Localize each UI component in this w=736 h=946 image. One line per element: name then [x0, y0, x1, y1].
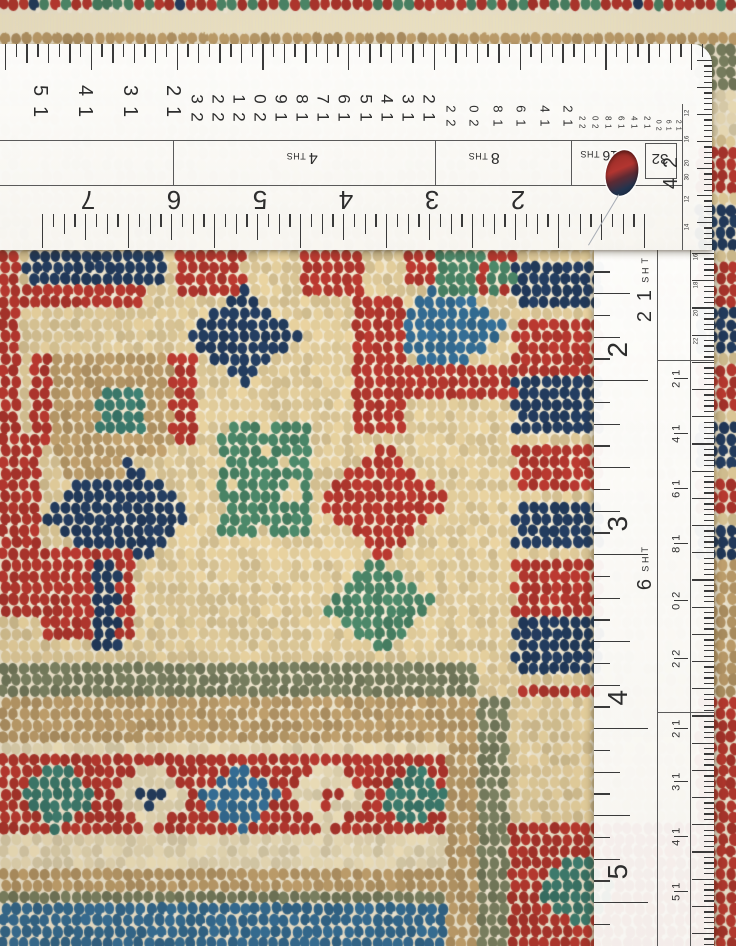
top-edge-tick: [359, 44, 360, 57]
scale-label-letter: H: [641, 556, 651, 563]
scale-label-number: 8: [491, 148, 500, 166]
scale-number: 41: [75, 80, 95, 122]
right-edge-tick: [704, 264, 714, 265]
right-edge-tick: [704, 569, 714, 570]
right-scale-tick: [674, 378, 688, 379]
top-edge-tick: [166, 44, 167, 57]
end-edge-tick: [704, 217, 713, 218]
bottom-edge-tick: [375, 214, 376, 227]
right-edge-tick: [704, 481, 714, 482]
ruler-digit: 1: [561, 119, 575, 126]
scale-label-suffix: THS: [468, 151, 488, 161]
scale-number: 61: [336, 90, 353, 126]
top-edge-tick: [541, 44, 542, 63]
top-edge-tick: [412, 44, 413, 63]
end-edge-tick: [704, 146, 713, 147]
scale-number: 51: [357, 90, 374, 126]
right-edge-tick: [704, 732, 714, 733]
ruler-digit: 0: [654, 120, 661, 124]
bottom-edge-tick: [612, 214, 613, 227]
right-edge-tick: [704, 329, 714, 330]
right-edge-tick: [704, 748, 714, 749]
bottom-edge-tick: [268, 214, 269, 227]
top-edge-tick: [402, 44, 403, 57]
top-edge-tick: [487, 44, 488, 57]
ruler-digit: 2: [209, 94, 227, 103]
right-edge-tick: [704, 802, 714, 803]
ruler-digit: 1: [616, 124, 624, 128]
scale-number: 41: [629, 114, 637, 131]
ruler-digit: 2: [163, 85, 184, 96]
left-edge-tick: [594, 424, 620, 425]
ruler-digit: 1: [672, 370, 684, 376]
right-edge-tick: [692, 362, 714, 363]
top-edge-tick: [37, 44, 38, 57]
right-edge-tick: [704, 400, 714, 401]
inch-number: 6: [164, 184, 184, 215]
bottom-edge-tick: [257, 214, 258, 240]
scale-number: 41: [538, 102, 551, 129]
end-edge-tick: [704, 98, 713, 99]
scale-number: 21: [420, 90, 437, 126]
top-edge-tick: [112, 44, 113, 63]
bottom-edge-tick: [214, 214, 215, 248]
bottom-edge-tick: [85, 214, 86, 240]
ruler-digit: 1: [672, 535, 684, 541]
ruler-digit: 1: [30, 106, 51, 117]
right-edge-tick: [692, 634, 714, 635]
inch-number: 4: [336, 184, 356, 215]
right-edge-tick: [704, 650, 714, 651]
top-edge-tick: [648, 44, 649, 63]
scale-label-letter: S: [641, 566, 651, 572]
end-edge-tick: [704, 119, 713, 120]
ruler-digit: 2: [642, 116, 650, 120]
bottom-edge-tick: [483, 214, 484, 227]
bottom-edge-tick: [150, 214, 151, 234]
top-edge-tick: [134, 44, 135, 63]
right-edge-tick: [692, 743, 714, 744]
right-scale-number: 22: [693, 338, 699, 345]
bottom-edge-tick: [472, 214, 473, 248]
top-edge-tick: [209, 44, 210, 57]
scale-number: 32: [188, 90, 205, 126]
end-scale-number: 12: [684, 196, 690, 203]
top-edge-tick: [59, 44, 60, 57]
right-edge-tick: [704, 465, 714, 466]
right-edge-tick: [704, 378, 714, 379]
top-edge-tick: [252, 44, 253, 57]
right-edge-tick: [704, 286, 714, 287]
scale-label-suffix: THS: [286, 151, 306, 161]
ruler-digit: 4: [662, 178, 683, 189]
ruler-digit: 8: [491, 105, 505, 112]
inch-number: 3: [422, 184, 442, 215]
scale-label-letter: S: [641, 277, 651, 283]
top-edge-tick: [466, 44, 467, 57]
top-edge-tick: [80, 44, 81, 57]
scale-number: 02: [251, 90, 268, 126]
bottom-edge-tick: [203, 214, 204, 227]
ruler-digit: 1: [674, 127, 681, 131]
top-edge-tick: [230, 44, 231, 57]
scale-label-number: 6: [636, 578, 657, 589]
bottom-edge-tick: [311, 214, 312, 227]
right-edge-tick: [704, 781, 714, 782]
inch-number: 4: [604, 683, 632, 712]
top-edge-tick: [26, 44, 27, 63]
right-scale-tick: [674, 600, 688, 601]
scale-label-letter: H: [641, 267, 651, 274]
ruler-digit: 1: [230, 94, 248, 103]
right-edge-tick: [704, 672, 714, 673]
right-edge-tick: [704, 928, 714, 929]
ruler-digit: 2: [672, 592, 684, 598]
ruler-digit: 2: [590, 124, 598, 128]
right-edge-tick: [704, 710, 714, 711]
inch-number: 5: [250, 184, 270, 215]
ruler-digit: 1: [664, 127, 671, 131]
top-edge-tick: [91, 44, 92, 70]
scale-number: 21: [163, 80, 183, 122]
top-edge-tick: [284, 44, 285, 63]
right-edge-tick: [704, 623, 714, 624]
ruler-digit: 1: [672, 828, 684, 834]
right-edge-tick: [704, 835, 714, 836]
top-edge-tick: [423, 44, 424, 57]
ruler-digit: 2: [467, 119, 481, 126]
right-scale-number: 18: [693, 282, 699, 289]
top-edge-tick: [241, 44, 242, 63]
scale-number: 22: [577, 114, 585, 131]
right-edge-tick: [704, 884, 714, 885]
bottom-edge-tick: [236, 214, 237, 234]
right-edge-tick: [704, 830, 714, 831]
section-divider: [682, 104, 683, 250]
right-scale-tick: [674, 658, 688, 659]
ruler-digit: 5: [672, 894, 684, 900]
right-edge-tick: [704, 449, 714, 450]
right-edge-tick: [704, 922, 714, 923]
bottom-edge-tick: [128, 214, 129, 248]
right-edge-tick: [704, 841, 714, 842]
horizontal-ruler: 5141312132221202918171615141312122028161…: [0, 44, 712, 250]
bottom-edge-tick: [117, 214, 118, 227]
ruler-digit: 1: [314, 112, 332, 121]
bottom-edge-tick: [42, 214, 43, 248]
ruler-digit: 6: [664, 120, 671, 124]
right-edge-tick: [704, 705, 714, 706]
left-edge-tick: [594, 576, 610, 577]
right-edge-tick: [704, 427, 714, 428]
end-edge-tick: [697, 195, 712, 196]
right-edge-tick: [704, 889, 714, 890]
scale-label-letter: T: [641, 547, 651, 553]
ruler-digit: 5: [603, 864, 632, 880]
vertical-ruler: 2345THS12THS6161820221214161820221213141…: [594, 250, 714, 946]
ruler-digit: 1: [672, 480, 684, 486]
right-scale-tick: [674, 781, 688, 782]
end-edge-tick: [704, 125, 713, 126]
left-edge-tick: [594, 315, 610, 316]
right-edge-tick: [692, 579, 714, 580]
end-edge-tick: [704, 238, 713, 239]
bottom-edge-tick: [580, 214, 581, 234]
ruler-digit: 1: [335, 112, 353, 121]
left-edge-tick: [594, 815, 630, 816]
end-edge-tick: [704, 173, 713, 174]
top-edge-tick: [530, 44, 531, 57]
ruler-digit: 4: [603, 690, 632, 706]
end-edge-tick: [704, 109, 713, 110]
right-edge-tick: [704, 367, 714, 368]
scale-number: 51: [30, 80, 50, 122]
ruler-line: [0, 140, 682, 141]
right-edge-tick: [704, 917, 714, 918]
scale-label-suffix: THS: [580, 149, 600, 159]
bottom-edge-tick: [160, 214, 161, 227]
left-edge-tick: [594, 271, 610, 272]
right-edge-tick: [692, 471, 714, 472]
inch-number: 3: [604, 509, 632, 538]
scale-number: 61: [664, 118, 671, 133]
right-edge-tick: [692, 552, 714, 553]
end-edge-tick: [704, 163, 713, 164]
right-edge-tick: [704, 666, 714, 667]
ruler-digit: 4: [672, 839, 684, 845]
ruler-digit: 1: [672, 720, 684, 726]
top-edge-tick: [509, 44, 510, 57]
top-edge-tick: [144, 44, 145, 57]
top-edge-tick: [670, 44, 671, 63]
bottom-edge-tick: [182, 214, 183, 227]
inch-digit: 4: [339, 184, 353, 215]
scale-number: 21: [674, 118, 681, 133]
ruler-digit: 2: [577, 116, 585, 120]
right-edge-tick: [704, 373, 714, 374]
top-edge-tick: [455, 44, 456, 63]
top-edge-tick: [595, 44, 596, 57]
top-edge-tick: [616, 44, 617, 57]
top-edge-tick: [327, 44, 328, 63]
right-edge-tick: [704, 454, 714, 455]
top-edge-tick: [605, 44, 606, 70]
right-scale-number: 20: [693, 310, 699, 317]
ruler-digit: 1: [514, 119, 528, 126]
end-edge-tick: [697, 114, 712, 115]
end-edge-tick: [704, 206, 713, 207]
bottom-edge-tick: [139, 214, 140, 227]
right-edge-tick: [704, 476, 714, 477]
ruler-digit: 2: [188, 112, 206, 121]
scale-label-number: 4: [309, 148, 318, 166]
top-edge-tick: [155, 44, 156, 63]
top-edge-tick: [123, 44, 124, 57]
right-edge-tick: [692, 797, 714, 798]
right-edge-tick: [704, 585, 714, 586]
end-scale-number: 16: [684, 136, 690, 143]
ruler-digit: 1: [491, 119, 505, 126]
right-edge-tick: [704, 558, 714, 559]
left-edge-tick: [594, 924, 610, 925]
ruler-digit: 3: [603, 516, 632, 532]
right-edge-tick: [704, 541, 714, 542]
end-edge-tick: [704, 82, 713, 83]
right-edge-tick: [692, 715, 714, 716]
right-edge-tick: [704, 438, 714, 439]
inch-number: 7: [78, 184, 98, 215]
scale-number: 02: [590, 114, 598, 131]
bottom-edge-tick: [53, 214, 54, 227]
top-edge-tick: [584, 44, 585, 63]
bottom-edge-tick: [64, 214, 65, 234]
right-edge-tick: [704, 601, 714, 602]
right-edge-tick: [704, 628, 714, 629]
end-scale-number: 30: [684, 174, 690, 181]
bottom-edge-tick: [300, 214, 301, 248]
inch-digit: 5: [253, 184, 267, 215]
ruler-digit: 2: [251, 112, 269, 121]
ruler-digit: 2: [230, 112, 248, 121]
right-edge-tick: [704, 503, 714, 504]
left-edge-tick: [594, 402, 610, 403]
right-edge-tick: [704, 422, 714, 423]
bottom-edge-tick: [343, 214, 344, 240]
bottom-edge-tick: [633, 214, 634, 227]
ruler-digit: 2: [603, 342, 632, 358]
ruler-digit: 1: [420, 112, 438, 121]
right-edge-tick: [704, 297, 714, 298]
right-edge-tick: [704, 868, 714, 869]
top-edge-tick: [198, 44, 199, 63]
bottom-edge-tick: [225, 214, 226, 227]
top-edge-tick: [48, 44, 49, 63]
ruler-digit: 6: [672, 491, 684, 497]
bottom-edge-tick: [440, 214, 441, 227]
inch-number: 2: [508, 184, 528, 215]
end-edge-tick: [704, 103, 713, 104]
left-edge-tick: [594, 902, 648, 903]
right-edge-tick: [704, 460, 714, 461]
right-edge-tick: [704, 944, 714, 945]
scale-number: 31: [399, 90, 416, 126]
scale-number: 21: [561, 102, 574, 129]
scale-label-number: 1: [636, 289, 657, 300]
right-edge-tick: [704, 737, 714, 738]
end-edge-tick: [704, 152, 713, 153]
left-edge-tick: [594, 467, 630, 468]
right-edge-tick: [704, 487, 714, 488]
bottom-edge-tick: [569, 214, 570, 227]
scale-number: 31: [120, 80, 140, 122]
scale-number: 21: [642, 114, 650, 131]
end-edge-tick: [704, 233, 713, 234]
bottom-edge-tick: [504, 214, 505, 227]
inch-digit: 2: [511, 184, 525, 215]
right-edge-tick: [704, 345, 714, 346]
ruler-digit: 8: [672, 546, 684, 552]
ruler-digit: 4: [672, 436, 684, 442]
end-edge-tick: [704, 244, 713, 245]
right-edge-tick: [692, 688, 714, 689]
right-edge-tick: [704, 547, 714, 548]
right-scale-tick: [674, 836, 688, 837]
right-edge-tick: [704, 808, 714, 809]
left-edge-tick: [594, 750, 610, 751]
left-edge-tick: [594, 772, 620, 773]
end-edge-tick: [704, 200, 713, 201]
right-scale-tick: [674, 488, 688, 489]
bottom-edge-tick: [74, 214, 75, 227]
ruler-digit: 0: [251, 94, 269, 103]
top-edge-tick: [477, 44, 478, 63]
ruler-digit: 1: [120, 106, 141, 117]
ruler-digit: 2: [672, 731, 684, 737]
end-edge-tick: [697, 222, 712, 223]
ruler-digit: 0: [467, 105, 481, 112]
top-edge-tick: [262, 44, 263, 70]
scale-number: 22: [209, 90, 226, 126]
top-edge-tick: [16, 44, 17, 57]
right-edge-tick: [692, 416, 714, 417]
right-edge-tick: [704, 536, 714, 537]
top-edge-tick: [573, 44, 574, 57]
scale-number: 41: [378, 90, 395, 126]
ruler-digit: 1: [293, 112, 311, 121]
ruler-digit: 3: [120, 85, 141, 96]
right-edge-tick: [704, 563, 714, 564]
top-edge-tick: [101, 44, 102, 57]
ruler-digit: 2: [662, 157, 683, 168]
end-edge-tick: [704, 211, 713, 212]
right-edge-tick: [704, 530, 714, 531]
left-edge-tick: [594, 489, 610, 490]
ruler-digit: 1: [377, 112, 395, 121]
right-edge-tick: [704, 862, 714, 863]
right-edge-tick: [704, 275, 714, 276]
left-edge-tick: [594, 619, 610, 620]
top-edge-tick: [520, 44, 521, 70]
section-divider: [435, 140, 436, 185]
scale-section-label: THS12: [636, 256, 656, 327]
end-edge-tick: [704, 184, 713, 185]
end-edge-tick: [704, 92, 713, 93]
ruler-digit: 2: [561, 105, 575, 112]
right-edge-tick: [704, 617, 714, 618]
scale-section-label: THS6: [636, 545, 656, 595]
top-edge-tick: [445, 44, 446, 57]
ruler-digit: 2: [444, 119, 458, 126]
bottom-edge-tick: [429, 214, 430, 240]
right-edge-tick: [704, 520, 714, 521]
bottom-edge-tick: [386, 214, 387, 248]
bottom-edge-tick: [623, 214, 624, 234]
ruler-digit: 5: [30, 85, 51, 96]
right-edge-tick: [704, 258, 714, 259]
bottom-edge-tick: [193, 214, 194, 234]
right-edge-tick: [704, 819, 714, 820]
end-edge-tick: [697, 141, 712, 142]
end-scale-number: 20: [684, 160, 690, 167]
right-edge-tick: [704, 857, 714, 858]
ruler-line: [690, 250, 691, 946]
scale-label-number: 2: [636, 310, 657, 321]
right-edge-tick: [692, 770, 714, 771]
end-scale-number: 12: [684, 110, 690, 117]
right-edge-tick: [704, 873, 714, 874]
bottom-edge-tick: [171, 214, 172, 240]
top-edge-tick: [337, 44, 338, 57]
